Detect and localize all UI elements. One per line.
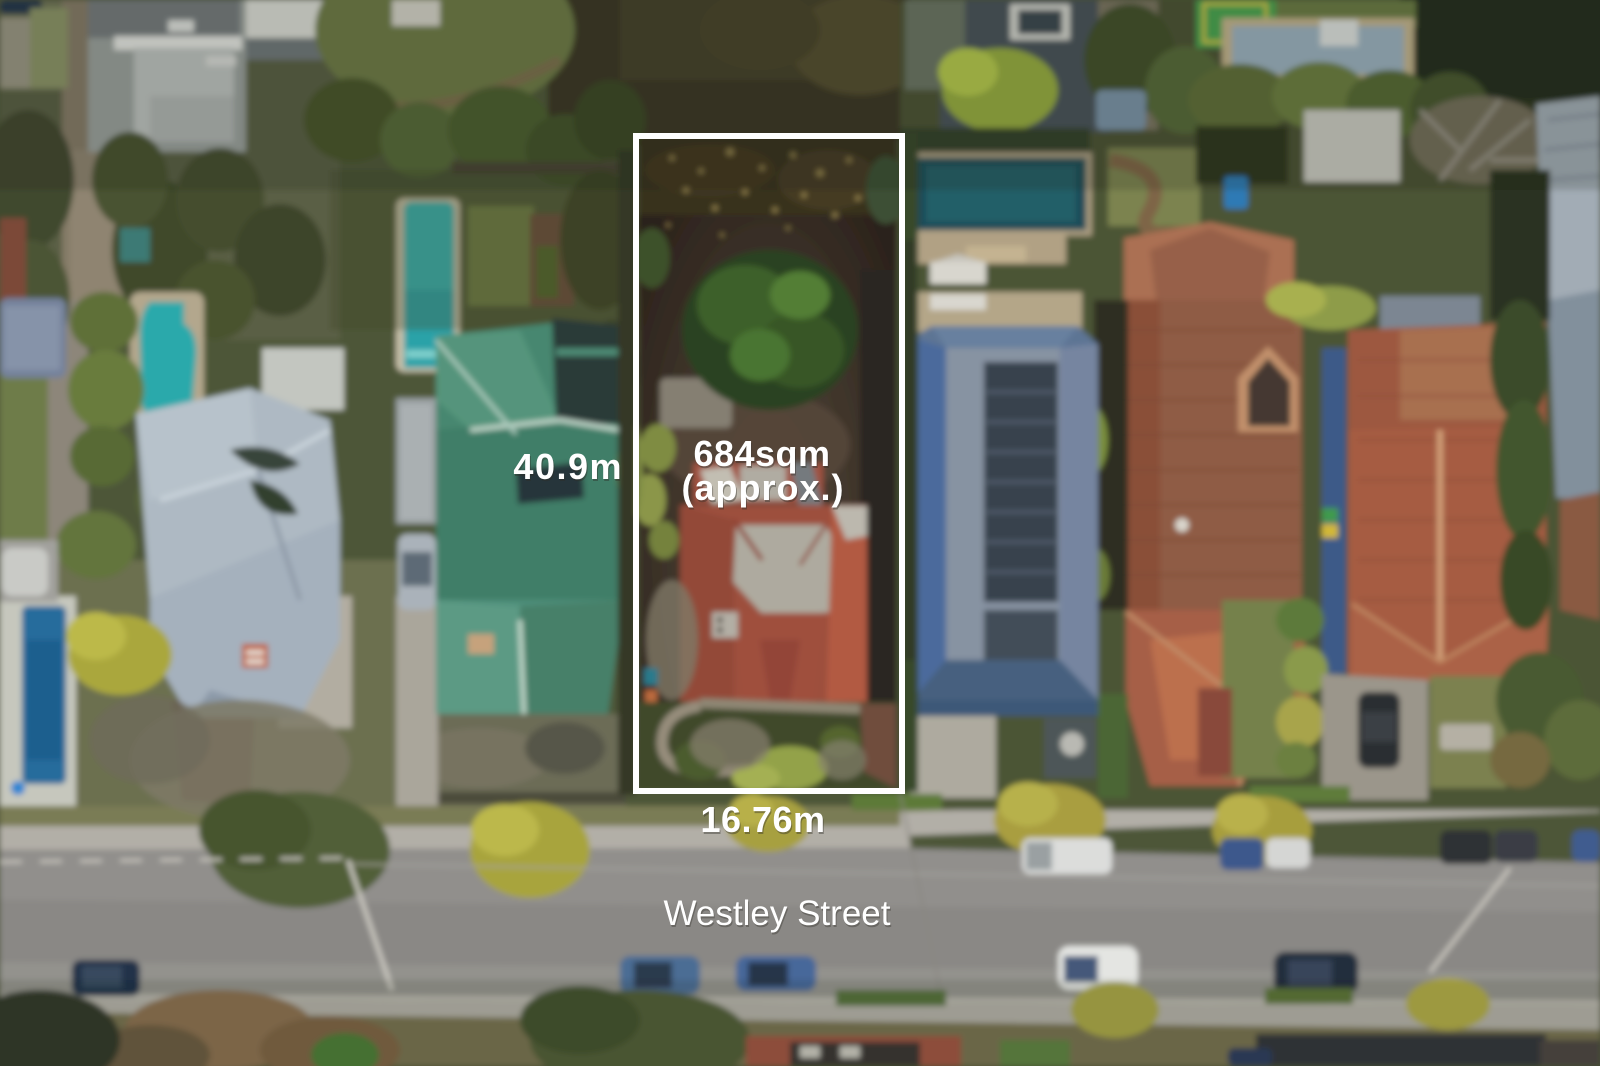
- svg-text:16.76m: 16.76m: [700, 799, 825, 840]
- svg-text:(approx.): (approx.): [681, 467, 844, 508]
- svg-text:Westley Street: Westley Street: [664, 894, 891, 933]
- svg-text:40.9m: 40.9m: [513, 446, 623, 487]
